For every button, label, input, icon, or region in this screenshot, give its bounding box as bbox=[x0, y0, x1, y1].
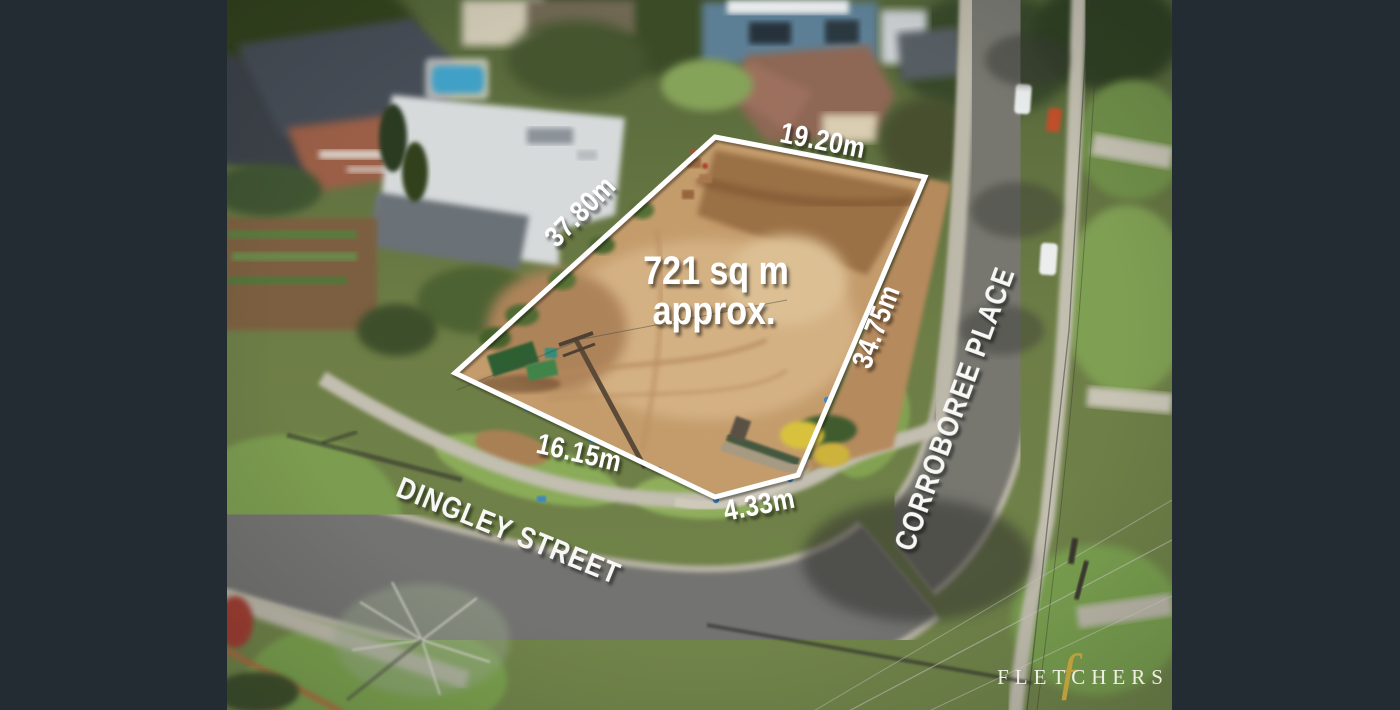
aerial-photo: 19.20m 37.80m 34.75m 16.15m 4.33m 721 sq… bbox=[227, 0, 1172, 710]
letterbox-right bbox=[1172, 0, 1400, 710]
brand-name: FLETCHERS bbox=[997, 665, 1169, 689]
letterbox-left bbox=[0, 0, 227, 710]
area-label-line2: approx. bbox=[653, 287, 776, 332]
vignette-overlay bbox=[227, 0, 1172, 710]
aerial-photo-canvas: 19.20m 37.80m 34.75m 16.15m 4.33m 721 sq… bbox=[227, 0, 1172, 710]
area-label-line1: 721 sq m bbox=[643, 247, 788, 292]
screenshot-stage: 19.20m 37.80m 34.75m 16.15m 4.33m 721 sq… bbox=[0, 0, 1400, 710]
